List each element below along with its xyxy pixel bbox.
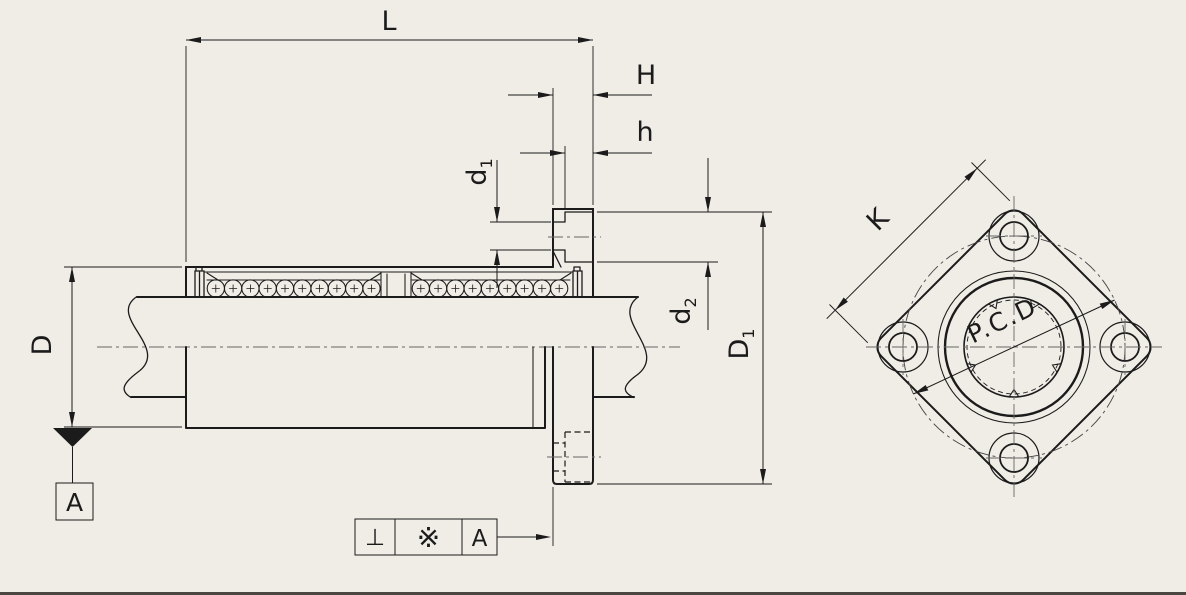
seal-clip-right	[573, 267, 582, 296]
flange-root-notch	[553, 251, 561, 267]
dim-L: L	[186, 6, 593, 262]
drawing-sheet: L H h d1	[0, 0, 1186, 595]
datum-feature-A: A	[53, 428, 93, 520]
dim-d2: d2	[597, 158, 772, 330]
body-outline-lower	[186, 347, 545, 428]
dim-label-D: D	[27, 335, 58, 356]
dim-label-h: h	[636, 117, 653, 148]
dim-d1: d1	[462, 158, 551, 288]
retainer-center-block	[381, 272, 411, 297]
seal-clip-left	[195, 267, 204, 296]
dim-h: h	[520, 117, 654, 209]
flange-outline-lower	[553, 347, 593, 484]
fcf-datum-ref: A	[472, 526, 488, 552]
dim-label-PCD: P.C.D	[963, 291, 1042, 349]
side-section-view: L H h d1	[27, 6, 772, 555]
dim-label-L: L	[381, 6, 396, 37]
datum-label: A	[66, 488, 83, 517]
dim-label-K: K	[861, 202, 896, 237]
end-view: K P.C.D	[827, 160, 1162, 498]
perpendicularity-symbol: ⊥	[365, 525, 385, 551]
feature-control-frame: ⊥ ※ A	[355, 487, 553, 555]
dim-label-d1: d1	[462, 158, 496, 185]
dim-D1: D1	[597, 212, 772, 484]
dim-label-d2: d2	[666, 297, 700, 324]
dim-label-H: H	[636, 60, 656, 91]
reference-mark-symbol: ※	[417, 521, 440, 554]
bearing-drawing: L H h d1	[0, 0, 1186, 595]
external-lower-half	[186, 347, 601, 484]
dim-label-D1: D1	[724, 329, 758, 360]
dim-H: H	[508, 60, 656, 205]
datum-triangle	[53, 428, 92, 447]
body-section-upper	[186, 267, 582, 297]
retainer-ramps	[207, 273, 571, 280]
flange-section-upper	[548, 209, 601, 297]
